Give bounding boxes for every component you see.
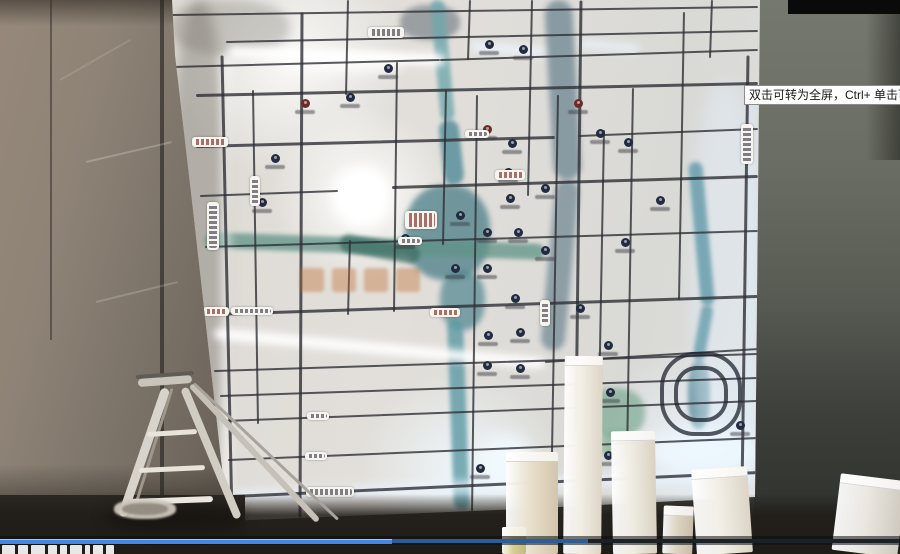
label-text-blur xyxy=(407,213,435,227)
poi-glyph xyxy=(739,423,742,426)
road-label-pill xyxy=(540,300,550,326)
river-blob xyxy=(440,270,485,330)
fullscreen-tooltip: 双击可转为全屏，Ctrl+ 单击可转为 xyxy=(744,85,900,105)
road-label-pill xyxy=(465,130,489,138)
poi-glyph xyxy=(486,363,489,366)
label-text-blur xyxy=(542,302,548,324)
poi-marker xyxy=(485,40,494,49)
label-text-blur xyxy=(205,309,227,314)
poi-marker xyxy=(271,154,280,163)
road-label-pill xyxy=(398,237,422,245)
poi-marker xyxy=(621,238,630,247)
poi-label xyxy=(600,399,620,403)
poi-label xyxy=(450,222,470,226)
poi-marker xyxy=(606,388,615,397)
road-label-pill xyxy=(305,452,327,460)
poi-glyph xyxy=(486,266,489,269)
poi-label xyxy=(730,432,750,436)
poi-glyph xyxy=(459,213,462,216)
pillar-top-face xyxy=(565,356,603,366)
road-label-pill xyxy=(231,307,273,315)
poi-label xyxy=(477,372,497,376)
poi-label xyxy=(535,257,555,261)
pillar-top-face xyxy=(506,452,558,462)
label-text-blur xyxy=(309,414,327,418)
poi-marker xyxy=(541,246,550,255)
poi-marker xyxy=(624,138,633,147)
label-text-blur xyxy=(233,309,271,313)
pillar-top-face xyxy=(611,431,655,442)
poi-glyph xyxy=(607,453,610,456)
poi-label xyxy=(510,375,530,379)
road-label-pill xyxy=(207,202,219,250)
poi-label xyxy=(395,245,415,249)
road-label-pill xyxy=(430,308,460,317)
poi-marker xyxy=(451,264,460,273)
progress-track[interactable] xyxy=(588,539,900,543)
poi-label xyxy=(615,249,635,253)
right-wall xyxy=(754,0,900,554)
poi-marker xyxy=(514,228,523,237)
poi-marker xyxy=(508,139,517,148)
poi-glyph xyxy=(517,230,520,233)
poi-glyph xyxy=(486,230,489,233)
poi-marker xyxy=(511,294,520,303)
road-label-pill xyxy=(495,170,525,180)
poi-glyph xyxy=(487,333,490,336)
poi-label xyxy=(508,239,528,243)
poi-label xyxy=(478,342,498,346)
poi-marker xyxy=(483,361,492,370)
poi-marker xyxy=(541,184,550,193)
backlight-glow xyxy=(340,174,382,218)
poi-label xyxy=(265,165,285,169)
poi-label xyxy=(513,56,533,60)
poi-marker xyxy=(483,228,492,237)
video-frame[interactable]: 双击可转为全屏，Ctrl+ 单击可转为 xyxy=(0,0,900,554)
caption-glyph-block xyxy=(2,545,15,554)
poi-marker xyxy=(384,64,393,73)
label-text-blur xyxy=(497,172,523,178)
poi-marker xyxy=(516,328,525,337)
poi-marker xyxy=(519,45,528,54)
poi-marker xyxy=(301,99,310,108)
label-text-blur xyxy=(467,132,487,136)
poi-label xyxy=(618,149,638,153)
road-label-pill xyxy=(307,412,329,420)
poi-marker xyxy=(516,364,525,373)
wall-seam xyxy=(160,0,164,520)
label-text-blur xyxy=(307,454,325,458)
poi-glyph xyxy=(511,141,514,144)
poi-glyph xyxy=(519,366,522,369)
progress-buffered[interactable] xyxy=(392,539,588,543)
poi-label xyxy=(505,305,525,309)
river-blob xyxy=(405,185,490,280)
poi-marker xyxy=(346,93,355,102)
poi-glyph xyxy=(454,266,457,269)
watermark-glyph xyxy=(396,268,420,292)
poi-label xyxy=(470,475,490,479)
interchange-ring xyxy=(674,366,728,422)
road-label-pill xyxy=(368,27,404,38)
road-label-pill xyxy=(192,137,228,147)
poi-glyph xyxy=(544,248,547,251)
poi-glyph xyxy=(261,200,264,203)
poi-glyph xyxy=(624,240,627,243)
caption-glyph-block xyxy=(70,545,82,554)
poi-label xyxy=(570,315,590,319)
pillar-top-face xyxy=(663,505,693,516)
poi-marker xyxy=(484,331,493,340)
poi-label xyxy=(295,110,315,114)
poi-glyph xyxy=(599,131,602,134)
caption-glyph-block xyxy=(60,545,67,554)
poi-glyph xyxy=(509,196,512,199)
poi-glyph xyxy=(387,66,390,69)
poi-label xyxy=(568,110,588,114)
watermark-glyph xyxy=(364,268,388,292)
label-text-blur xyxy=(432,310,458,315)
poi-label xyxy=(502,150,522,154)
poi-glyph xyxy=(479,466,482,469)
poi-label xyxy=(650,207,670,211)
poi-glyph xyxy=(579,306,582,309)
caption-glyph-block xyxy=(31,545,45,554)
caption-glyph-block xyxy=(93,545,103,554)
poi-marker xyxy=(476,464,485,473)
poi-glyph xyxy=(659,198,662,201)
poi-marker xyxy=(506,194,515,203)
label-text-blur xyxy=(743,126,751,162)
poi-marker xyxy=(483,264,492,273)
foam-pillar xyxy=(662,505,694,554)
wall-seam xyxy=(50,0,52,340)
road-label-pill xyxy=(741,124,753,164)
poi-label xyxy=(445,275,465,279)
bucket-inner xyxy=(122,503,168,515)
poi-glyph xyxy=(627,140,630,143)
dark-corner xyxy=(788,0,900,14)
poi-label xyxy=(500,205,520,209)
poi-label xyxy=(535,195,555,199)
poi-glyph xyxy=(488,42,491,45)
road-label-pill xyxy=(405,211,437,229)
poi-marker xyxy=(604,341,613,350)
caption-glyph-block xyxy=(106,545,114,554)
poi-marker xyxy=(576,304,585,313)
label-text-blur xyxy=(194,139,226,145)
caption-glyph-block xyxy=(18,545,28,554)
poi-label xyxy=(590,140,610,144)
poi-glyph xyxy=(577,101,580,104)
label-text-blur xyxy=(400,239,420,243)
progress-played[interactable] xyxy=(0,539,392,544)
poi-label xyxy=(477,239,497,243)
label-text-blur xyxy=(209,204,217,248)
poi-glyph xyxy=(519,330,522,333)
poi-label xyxy=(477,275,497,279)
label-text-blur xyxy=(370,29,402,36)
watermark-glyph xyxy=(332,268,356,292)
poi-marker xyxy=(456,211,465,220)
poi-glyph xyxy=(349,95,352,98)
poi-glyph xyxy=(544,186,547,189)
poi-glyph xyxy=(514,296,517,299)
poi-marker xyxy=(596,129,605,138)
caption-glyph-block xyxy=(48,545,57,554)
foam-pillar xyxy=(563,356,603,554)
poi-glyph xyxy=(304,101,307,104)
poi-label xyxy=(510,339,530,343)
watermark-glyph xyxy=(300,268,324,292)
poi-label xyxy=(479,51,499,55)
poi-glyph xyxy=(609,390,612,393)
poi-label xyxy=(378,75,398,79)
poi-label xyxy=(252,209,272,213)
poi-label xyxy=(340,104,360,108)
caption-glyph-block xyxy=(85,545,90,554)
poi-marker xyxy=(574,99,583,108)
poi-glyph xyxy=(274,156,277,159)
road-label-pill xyxy=(203,307,229,316)
poi-marker xyxy=(736,421,745,430)
poi-glyph xyxy=(607,343,610,346)
poi-glyph xyxy=(522,47,525,50)
poi-marker xyxy=(656,196,665,205)
label-text-blur xyxy=(252,178,258,204)
cutoff-caption xyxy=(2,545,114,554)
road-label-pill xyxy=(250,176,260,206)
